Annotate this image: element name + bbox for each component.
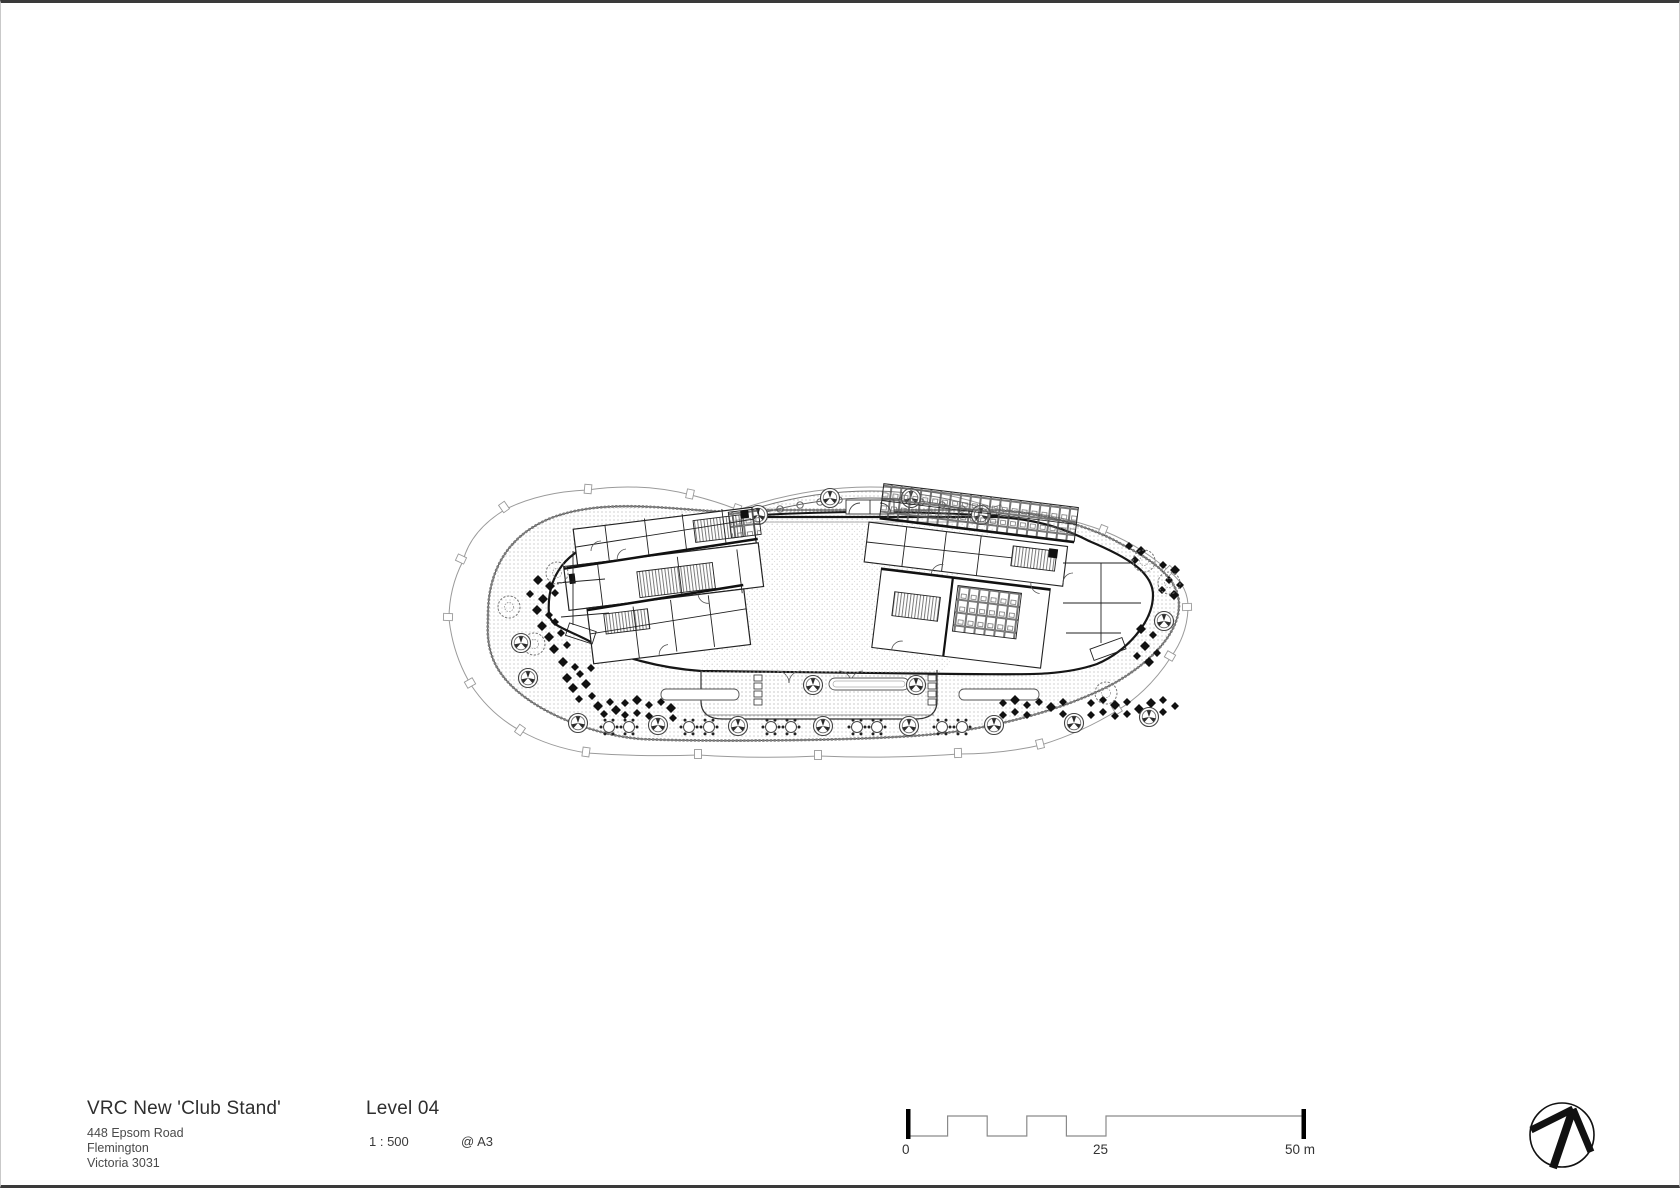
floor-plan-drawing [1, 3, 1680, 1188]
scale-bar-label-25: 25 [1093, 1142, 1108, 1157]
column-icon [907, 676, 926, 695]
scale-bar-label-0: 0 [902, 1142, 910, 1157]
column-icon [821, 489, 840, 508]
sheet-size: @ A3 [461, 1134, 493, 1149]
project-title: VRC New 'Club Stand' [87, 1098, 281, 1120]
left-wing-core [559, 505, 774, 666]
address-line-2: Flemington [87, 1141, 184, 1156]
level-label: Level 04 [366, 1098, 439, 1120]
project-address: 448 Epsom Road Flemington Victoria 3031 [87, 1126, 184, 1171]
address-line-1: 448 Epsom Road [87, 1126, 184, 1141]
column-icon [804, 676, 823, 695]
scale-bar-end-tick [1302, 1109, 1307, 1139]
drawing-sheet: VRC New 'Club Stand' 448 Epsom Road Flem… [0, 0, 1680, 1188]
wc-block [952, 585, 1021, 638]
north-arrow-icon [1519, 1095, 1611, 1187]
stair [892, 592, 941, 621]
scale-bar-label-50: 50 m [1285, 1142, 1315, 1157]
planter [829, 678, 909, 690]
scale-bar-steps [908, 1116, 1304, 1136]
address-line-3: Victoria 3031 [87, 1156, 184, 1171]
scale-value: 1 : 500 [369, 1134, 409, 1149]
scale-bar-start-tick [906, 1109, 911, 1139]
